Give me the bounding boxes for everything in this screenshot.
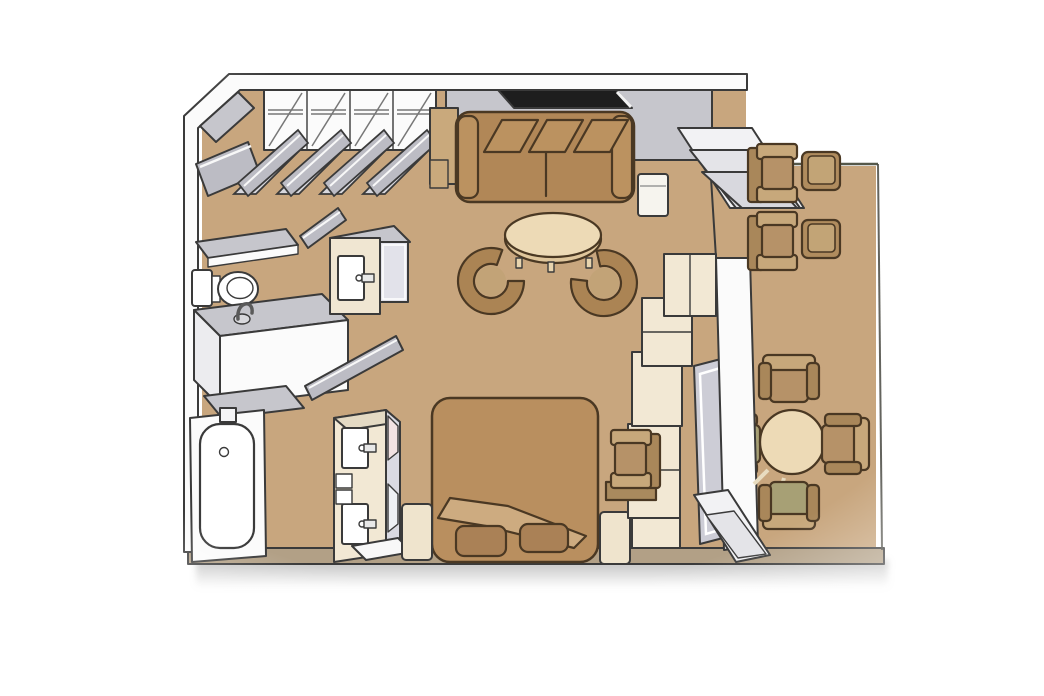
double-bed bbox=[432, 398, 598, 562]
dining-chair bbox=[759, 482, 819, 529]
dining-chair bbox=[759, 355, 819, 402]
vanity-dresser bbox=[334, 410, 412, 562]
coffee-table bbox=[505, 213, 601, 272]
balcony-side-table bbox=[802, 152, 840, 190]
minibar-cabinet bbox=[430, 108, 458, 188]
sofa bbox=[456, 112, 634, 202]
balcony-side-table bbox=[802, 220, 840, 258]
toilet bbox=[192, 270, 258, 306]
dining-chair bbox=[822, 414, 869, 474]
tub-drain bbox=[220, 448, 229, 457]
floor-plan-canvas bbox=[0, 0, 1044, 696]
floor-plan-drawing bbox=[0, 0, 1044, 696]
balcony-lounge-chair bbox=[748, 212, 797, 270]
mirror-panel bbox=[380, 242, 408, 302]
window-glass bbox=[498, 90, 632, 108]
desk-chair bbox=[611, 430, 660, 488]
nightstand bbox=[600, 512, 630, 564]
pillow bbox=[456, 526, 506, 556]
sofa-side-table bbox=[638, 174, 668, 216]
nightstand bbox=[402, 504, 432, 560]
wall-window bbox=[498, 90, 632, 108]
sofa-arm bbox=[458, 116, 478, 198]
tub-faucet bbox=[220, 408, 236, 422]
pillow bbox=[520, 524, 568, 552]
mirrored-cabinet bbox=[330, 226, 410, 314]
balcony-lounge-chair bbox=[748, 144, 797, 202]
